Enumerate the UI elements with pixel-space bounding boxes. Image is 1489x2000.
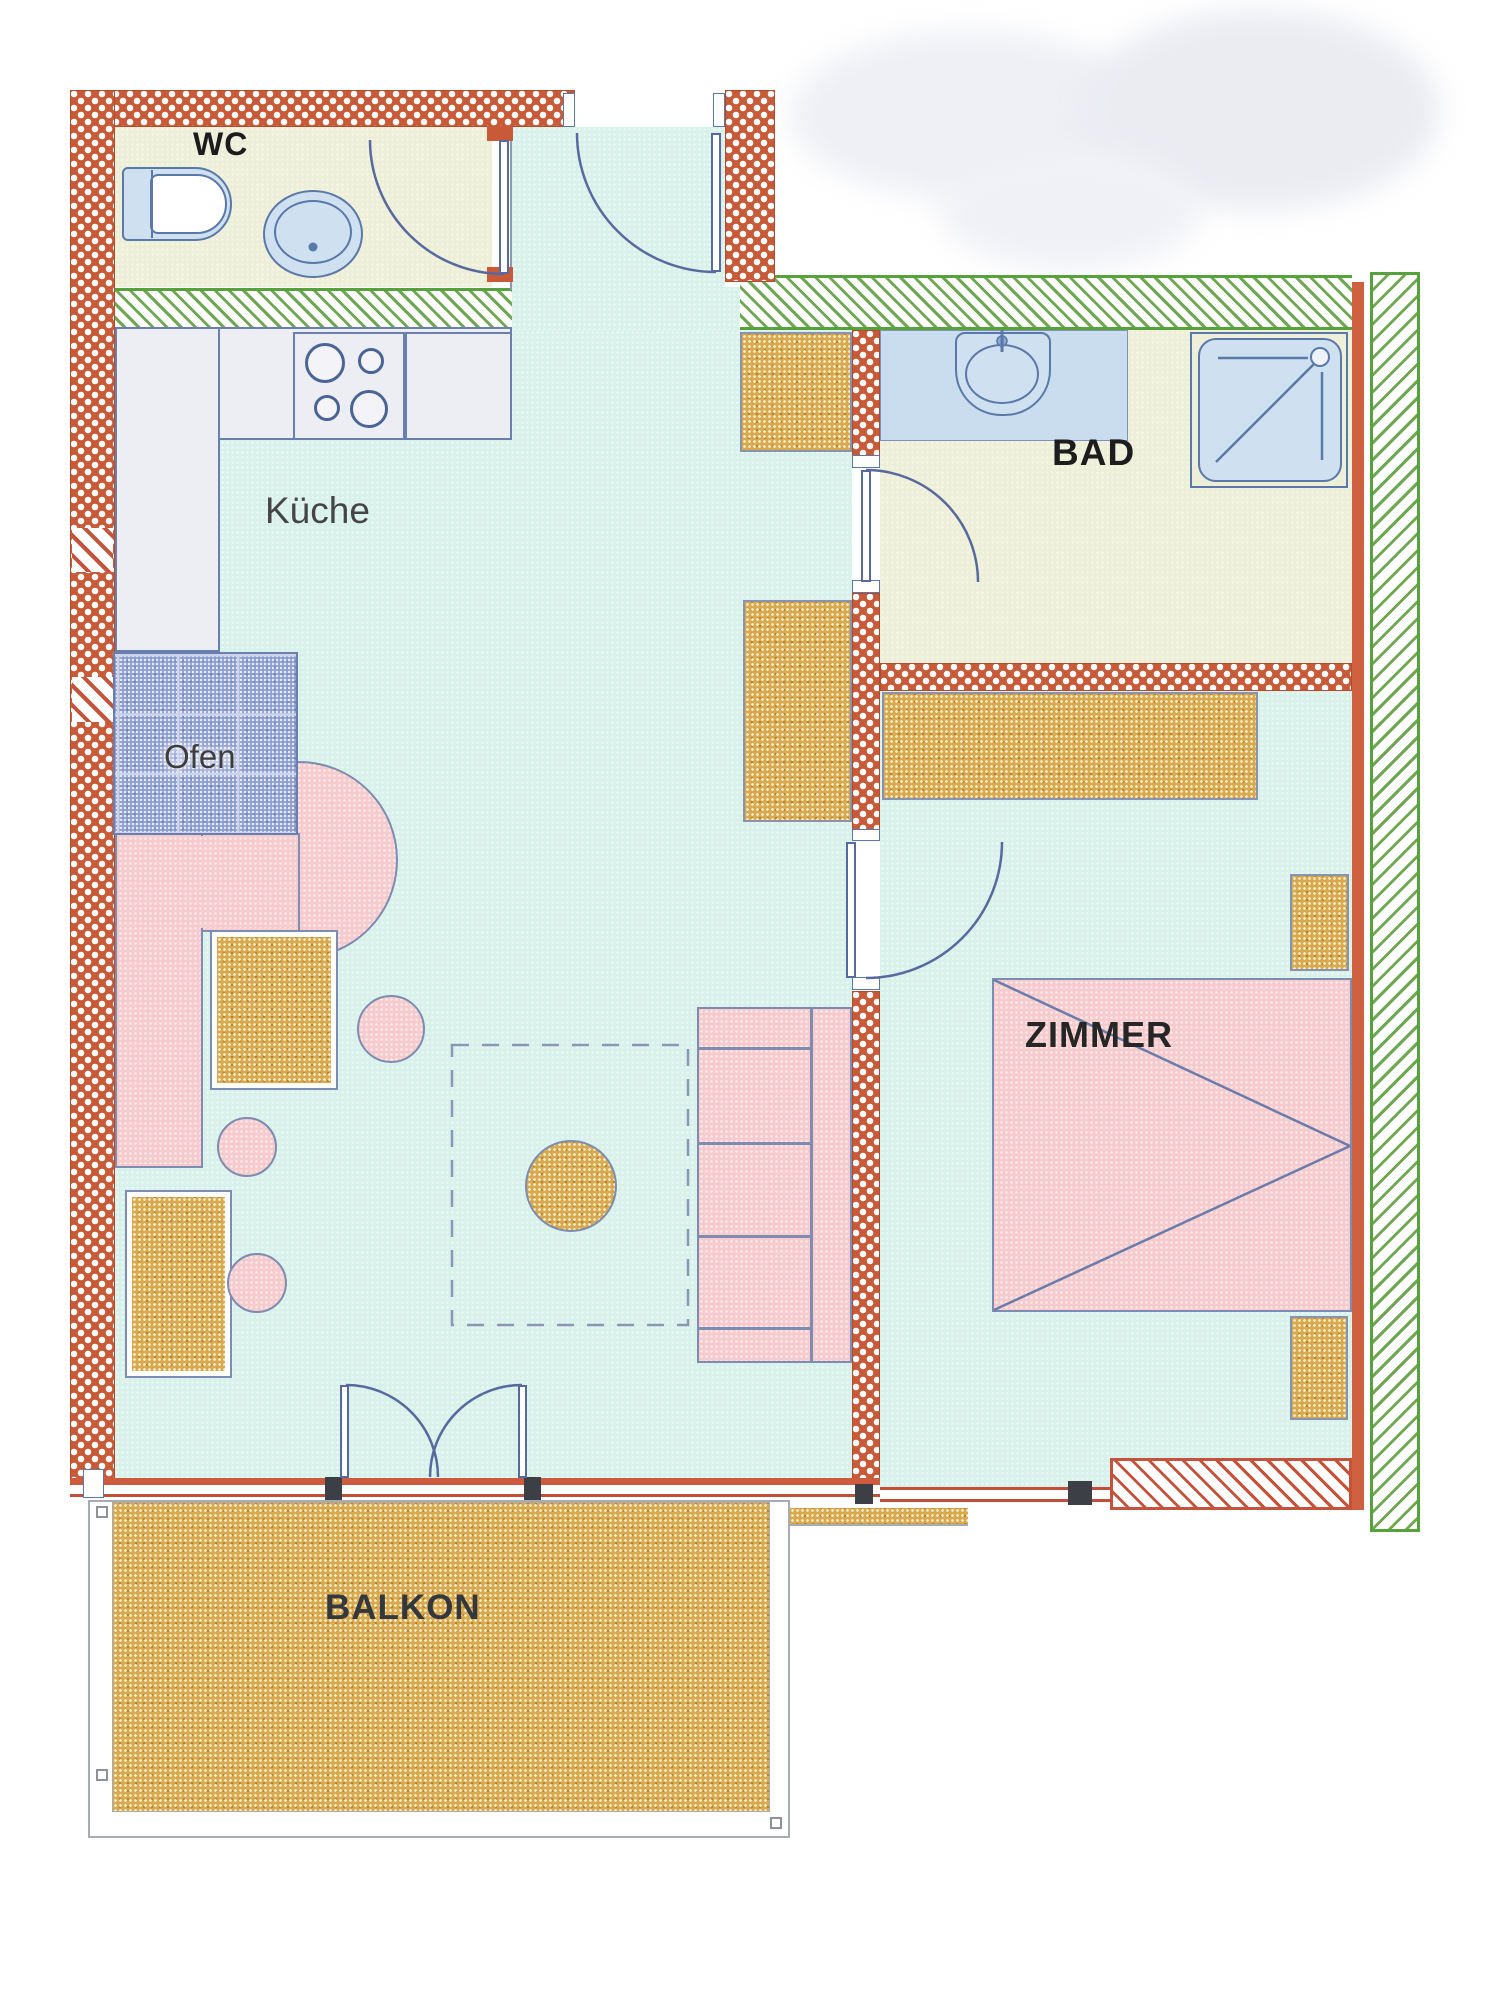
room-label-oven: Ofen — [164, 738, 236, 776]
wc-door-jamb — [487, 126, 513, 141]
room-label-balcony: BALKON — [325, 1588, 481, 1628]
coffee-table-round — [525, 1140, 617, 1232]
balcony-deck — [112, 1502, 770, 1812]
stove-burner-icon — [350, 390, 388, 428]
nightstand — [1290, 874, 1349, 971]
wall-red-line-right — [1352, 282, 1364, 1510]
wall-center-seg1 — [852, 330, 880, 457]
entry-door-jamb — [563, 93, 575, 127]
stool — [217, 1117, 277, 1177]
wall-green-right — [1370, 272, 1420, 1532]
wardrobe-zimmer — [882, 692, 1258, 800]
wall-green-over-bad — [740, 275, 1352, 330]
room-label-bad: BAD — [1052, 432, 1135, 474]
corridor-floor — [512, 287, 740, 335]
zimmer-door-jamb — [852, 977, 880, 990]
wall-window-living-bottom — [70, 1478, 880, 1502]
bad-door-jamb — [852, 455, 880, 468]
room-label-kitchen: Küche — [265, 490, 370, 532]
balcony-post — [770, 1817, 782, 1829]
wall-green-under-wc — [70, 288, 512, 330]
wall-entry-column — [725, 90, 775, 282]
bench-fill — [118, 836, 200, 1164]
wardrobe-corridor — [740, 332, 852, 452]
sofa-cushion-line — [697, 1047, 812, 1050]
floor-plan: WC Küche Ofen BAD ZIMMER BALKON — [0, 0, 1489, 2000]
window-post — [524, 1477, 541, 1502]
wall-left-window-patch — [72, 677, 113, 722]
balcony-post — [96, 1506, 108, 1518]
kitchen-unit — [405, 332, 512, 440]
sofa-cushion-line — [697, 1327, 812, 1330]
wardrobe-corridor — [743, 600, 852, 822]
wall-parapet-zimmer — [1110, 1458, 1352, 1510]
window-post — [325, 1477, 342, 1502]
scan-artifact — [940, 150, 1200, 270]
wc-sink-basin — [274, 200, 352, 264]
wall-left — [70, 90, 115, 1480]
sofa — [697, 1007, 852, 1363]
sofa-back-line — [810, 1007, 813, 1363]
dining-table — [210, 930, 338, 1090]
stove-burner-icon — [314, 395, 340, 421]
balcony-door-leaf — [518, 1385, 527, 1478]
bad-door-leaf — [861, 470, 871, 582]
bad-sink-basin — [965, 344, 1039, 404]
zimmer-door-leaf — [846, 842, 856, 978]
nightstand — [1290, 1316, 1348, 1420]
balcony-deck-strip — [790, 1508, 968, 1526]
wc-door-leaf — [499, 140, 509, 274]
kitchen-counter-fill — [118, 330, 217, 437]
stove-burner-icon — [305, 343, 345, 383]
wc-partition-line — [510, 127, 512, 290]
entry-door-leaf — [711, 133, 721, 272]
balcony-post — [96, 1769, 108, 1781]
balcony-door-leaf — [340, 1385, 349, 1478]
wall-top — [70, 90, 575, 127]
sofa-cushion-line — [697, 1142, 812, 1145]
window-post — [1068, 1481, 1092, 1505]
toilet-bowl — [150, 174, 227, 234]
shower-tray — [1198, 338, 1342, 482]
stool — [357, 995, 425, 1063]
stool — [227, 1253, 287, 1313]
entry-door-jamb — [713, 93, 725, 127]
wall-bad-zimmer — [880, 663, 1352, 691]
zimmer-door-jamb — [852, 829, 880, 841]
room-label-zimmer: ZIMMER — [1025, 1014, 1173, 1056]
stove-burner-icon — [358, 348, 384, 374]
entry-hall-floor — [512, 127, 725, 290]
sofa-cushion-line — [697, 1235, 812, 1238]
wall-end-post — [855, 1484, 873, 1504]
window-jamb — [83, 1469, 104, 1498]
wall-left-window-patch — [72, 528, 113, 572]
wall-center-seg3 — [852, 991, 880, 1484]
side-table — [125, 1190, 232, 1378]
wall-center-seg2 — [852, 593, 880, 830]
room-label-wc: WC — [193, 126, 248, 163]
